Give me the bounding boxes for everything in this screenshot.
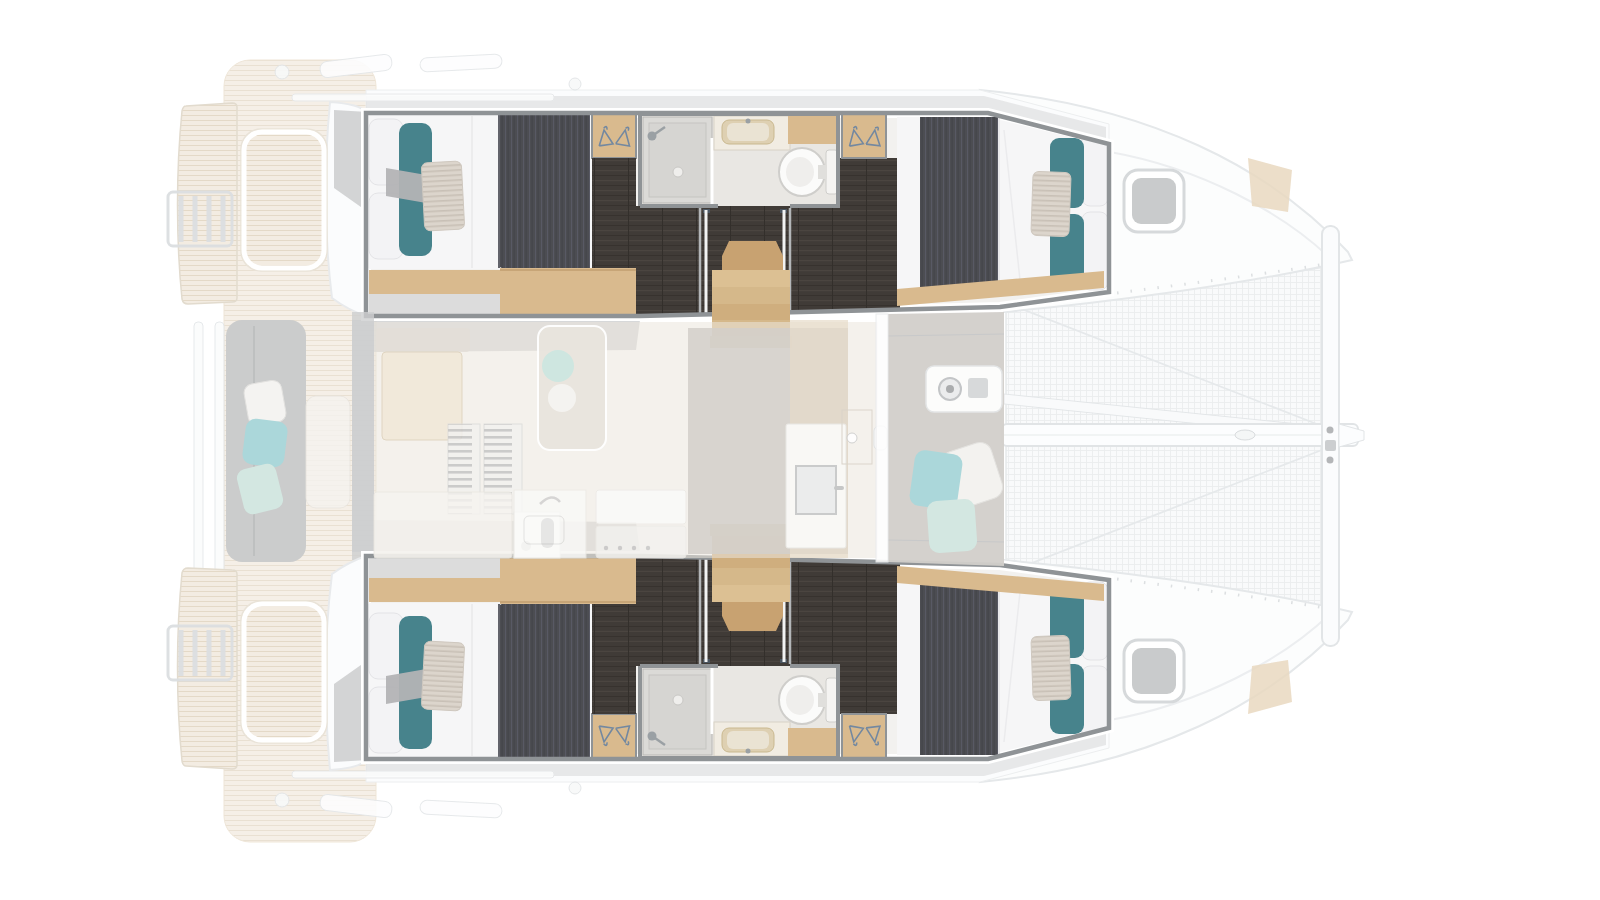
cockpit-table	[306, 396, 350, 508]
saloon-sofa	[376, 328, 470, 352]
windlass-console	[926, 366, 1002, 412]
galley-oven	[596, 526, 686, 558]
cockpit-bulkhead	[876, 314, 888, 562]
galley-stove	[596, 490, 686, 524]
console-door	[796, 466, 836, 514]
console-knob	[847, 433, 857, 443]
dinghy-davits	[194, 322, 224, 574]
galley-ghost	[374, 490, 686, 558]
longitudinal-beam	[1002, 424, 1358, 446]
catamaran-floor-plan	[0, 0, 1600, 900]
bench-pillow-aqua	[241, 418, 288, 469]
cushion-mint	[542, 350, 574, 382]
beam-fitting	[1235, 430, 1255, 440]
windlass-icon	[946, 385, 954, 393]
chain-locker	[968, 378, 988, 398]
scatter-pillow-mint	[926, 498, 978, 553]
galley-counter	[374, 492, 512, 558]
galley-sink-unit	[514, 490, 586, 558]
forward-cockpit	[876, 312, 1006, 566]
cushion-white	[548, 384, 576, 412]
saloon-ghost	[374, 320, 887, 558]
chaise-lounge	[538, 326, 606, 450]
beam-fitting	[1327, 427, 1334, 434]
console-handle	[834, 486, 844, 490]
beam-fitting	[1325, 440, 1336, 451]
catamaran-floor-plan-canvas	[0, 0, 1600, 900]
bench-pillow-white	[243, 379, 288, 427]
forward-crossbeam	[1322, 226, 1339, 646]
beam-fitting	[1327, 457, 1334, 464]
bowsprit	[1339, 424, 1364, 447]
